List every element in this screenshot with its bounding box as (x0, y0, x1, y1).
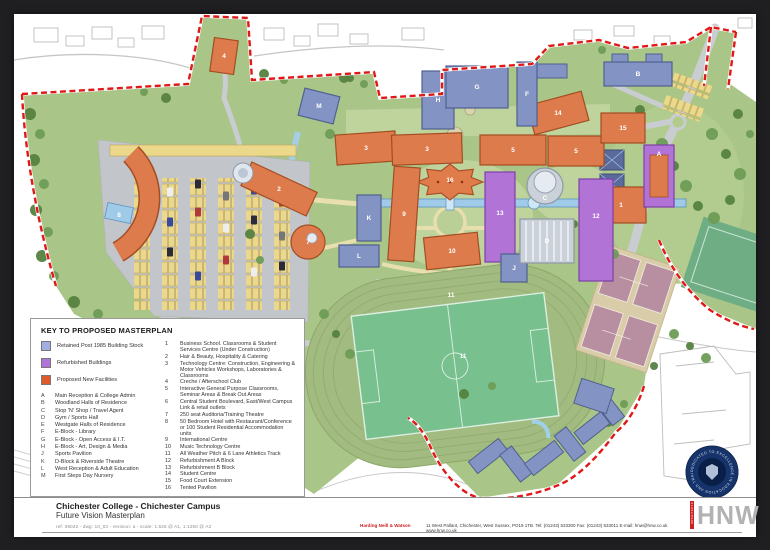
legend-item: 12Refurbishment A Block (165, 458, 296, 464)
tree-icon (345, 349, 355, 359)
legend-item: 14Student Centre (165, 471, 296, 477)
tree-icon (140, 88, 148, 96)
legend-swatch-item: Refurbished Buildings (41, 358, 157, 368)
map-building (579, 179, 613, 281)
legend-item: 6Central Student Boulevard, East/West Ca… (165, 399, 296, 411)
parked-car-icon (223, 192, 229, 201)
drawing-ref: ref: 06022 - dwg: 10_03 - revision: a - … (56, 524, 211, 529)
legend-title: KEY TO PROPOSED MASTERPLAN (41, 326, 296, 335)
title-rule (42, 532, 742, 533)
tree-icon (256, 256, 264, 264)
parked-car-icon (195, 272, 201, 281)
tree-icon (650, 362, 658, 370)
tree-icon (701, 353, 711, 363)
map-building-label: A (657, 151, 662, 158)
title-block: Chichester College - Chichester Campus F… (14, 497, 756, 537)
tree-icon (39, 179, 49, 189)
drawing-page: 427833551415191016A1213MHGFBKLJDC1111 KE… (14, 14, 756, 536)
parked-car-icon (167, 188, 173, 197)
legend-item: MFirst Steps Day Nursery (41, 473, 157, 479)
parked-car-icon (223, 224, 229, 233)
legend-lettered-list: AMain Reception & College AdminBWoodland… (41, 393, 157, 479)
tree-icon (488, 382, 496, 390)
tree-icon (686, 342, 694, 350)
legend-item: 13Refurbishment B Block (165, 465, 296, 471)
architects-label: ARCHITECTS (690, 502, 694, 524)
legend-item: 4Creche / Afterschool Club (165, 379, 296, 385)
firm-name: Harding Neill & Watson (360, 523, 411, 528)
tree-icon (319, 309, 329, 319)
tree-icon (332, 330, 340, 338)
map-building-label: 3 (364, 145, 368, 152)
legend-item: 3Technology Centre: Construction, Engine… (165, 361, 296, 379)
legend-item: 15Food Court Extension (165, 478, 296, 484)
parked-car-icon (279, 262, 285, 271)
legend-item: HE-Block - Art, Design & Media (41, 444, 157, 450)
tree-icon (68, 296, 80, 308)
map-building-label: B (636, 71, 641, 78)
football-pitch (351, 293, 559, 440)
legend-item: BWoodland Halls of Residence (41, 400, 157, 406)
tree-icon (598, 46, 606, 54)
map-building-label: 1 (619, 202, 623, 209)
hnw-logo-text: HNW (697, 499, 760, 533)
legend-item: AMain Reception & College Admin (41, 393, 157, 399)
parked-car-icon (223, 256, 229, 265)
tree-icon (669, 329, 679, 339)
legend-swatch (41, 358, 51, 368)
legend-item: 2Hair & Beauty, Hospitality & Catering (165, 354, 296, 360)
tree-icon (24, 108, 36, 120)
map-building-label: 16 (446, 177, 454, 184)
map-building-label: 12 (592, 213, 600, 220)
college-crest: DEDICATED TO EXCELLENCE IN EDUCATION AND… (684, 444, 740, 500)
legend-swatch-item: Retained Post 1985 Building Stock (41, 341, 157, 351)
map-building-label: L (357, 253, 361, 260)
architects-bar: ARCHITECTS (690, 501, 694, 529)
hnw-logo: ARCHITECTS HNW (690, 499, 752, 531)
legend-item: JSports Pavilion (41, 451, 157, 457)
tree-icon (725, 195, 735, 205)
legend-item: FE-Block - Library (41, 429, 157, 435)
masterplan-sheet: 427833551415191016A1213MHGFBKLJDC1111 KE… (0, 0, 770, 550)
parked-car-icon (167, 218, 173, 227)
parked-car-icon (195, 180, 201, 189)
map-building-label: 9 (402, 211, 406, 218)
map-building-label: 2 (277, 186, 281, 193)
tree-icon (733, 109, 743, 119)
parked-car-icon (251, 268, 257, 277)
map-building-label: F (525, 91, 529, 98)
map-building-label: 11 (448, 292, 455, 299)
legend-item: CStop 'N' Shop / Travel Agent (41, 408, 157, 414)
map-building-label: G (474, 84, 479, 91)
legend-item: LWest Reception & Adult Education (41, 466, 157, 472)
legend-item: GE-Block - Open Access & I.T. (41, 437, 157, 443)
legend-item: 1Business School. Classrooms & Student S… (165, 341, 296, 353)
parked-car-icon (251, 216, 257, 225)
legend-item: 9International Centre (165, 437, 296, 443)
legend-swatches: Retained Post 1985 Building StockRefurbi… (41, 341, 157, 385)
map-building-label: 15 (619, 125, 627, 132)
tree-icon (459, 389, 469, 399)
legend-item: 16Tented Pavilion (165, 485, 296, 491)
parked-car-icon (195, 208, 201, 217)
map-building-label: M (316, 103, 321, 110)
parked-car-icon (279, 232, 285, 241)
legend-numbered-list: 1Business School. Classrooms & Student S… (165, 341, 296, 491)
legend-swatch (41, 341, 51, 351)
map-building-label: 4 (222, 53, 226, 60)
legend-item: 7250 seat Auditoria/Training Theatre (165, 412, 296, 418)
map-building-label: 13 (496, 210, 504, 217)
tree-icon (746, 130, 754, 138)
map-building-label: 10 (448, 248, 456, 255)
tree-icon (245, 229, 255, 239)
road-island (671, 115, 685, 129)
tree-icon (721, 149, 731, 159)
legend-item: EWestgate Halls of Residence (41, 422, 157, 428)
tree-icon (706, 128, 718, 140)
tree-icon (35, 129, 45, 139)
legend-swatch (41, 375, 51, 385)
map-building-label: K (367, 215, 372, 222)
map-building-label: 3 (425, 146, 429, 153)
map-building-label: 14 (554, 110, 562, 117)
map-building-label: D (545, 238, 550, 245)
sheet-subtitle: Future Vision Masterplan (56, 511, 145, 520)
legend-item: 10Music Technology Centre (165, 444, 296, 450)
tree-icon (708, 212, 720, 224)
tree-icon (620, 400, 628, 408)
map-building-label: H (436, 97, 441, 104)
legend-item: KD-Block & Riverside Theatre (41, 459, 157, 465)
legend-item: DGym / Sports Hall (41, 415, 157, 421)
legend-item: 5Interactive General Purpose Classrooms,… (165, 386, 296, 398)
tree-icon (161, 93, 171, 103)
map-building-label: 8 (117, 212, 121, 219)
map-building-label: J (512, 265, 516, 272)
tree-icon (693, 201, 703, 211)
legend-item: 850 Bedroom Hotel with Restaurant/Confer… (165, 419, 296, 437)
sheet-title: Chichester College - Chichester Campus (56, 501, 220, 511)
map-building-label: 5 (574, 148, 578, 155)
tree-icon (325, 129, 335, 139)
tree-icon (360, 80, 368, 88)
legend-panel: KEY TO PROPOSED MASTERPLAN Retained Post… (30, 318, 305, 497)
map-building-label: C (543, 195, 548, 202)
legend-swatch-item: Proposed New Facilities (41, 375, 157, 385)
legend-item: 11All Weather Pitch & 6 Lane Athletics T… (165, 451, 296, 457)
map-building-label: 7 (306, 239, 310, 246)
tree-icon (734, 168, 746, 180)
map-building-label: 5 (511, 147, 515, 154)
tree-icon (680, 180, 692, 192)
parked-car-icon (167, 248, 173, 257)
map-building-label: 11 (460, 353, 467, 360)
